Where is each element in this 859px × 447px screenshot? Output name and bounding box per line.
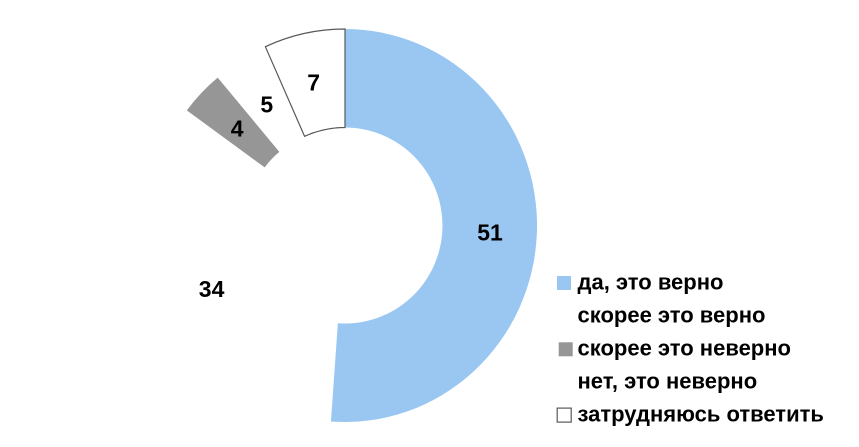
svg-text:затрудняюсь ответить: затрудняюсь ответить xyxy=(578,402,824,427)
svg-text:34: 34 xyxy=(199,276,225,302)
svg-text:нет, это неверно: нет, это неверно xyxy=(578,369,758,394)
svg-text:скорее это неверно: скорее это неверно xyxy=(578,336,791,361)
svg-text:4: 4 xyxy=(231,116,244,142)
svg-text:скорее это верно: скорее это верно xyxy=(578,302,766,327)
svg-text:7: 7 xyxy=(307,70,320,96)
svg-text:51: 51 xyxy=(477,220,503,246)
svg-text:да, это верно: да, это верно xyxy=(578,269,724,294)
svg-text:5: 5 xyxy=(260,91,273,117)
